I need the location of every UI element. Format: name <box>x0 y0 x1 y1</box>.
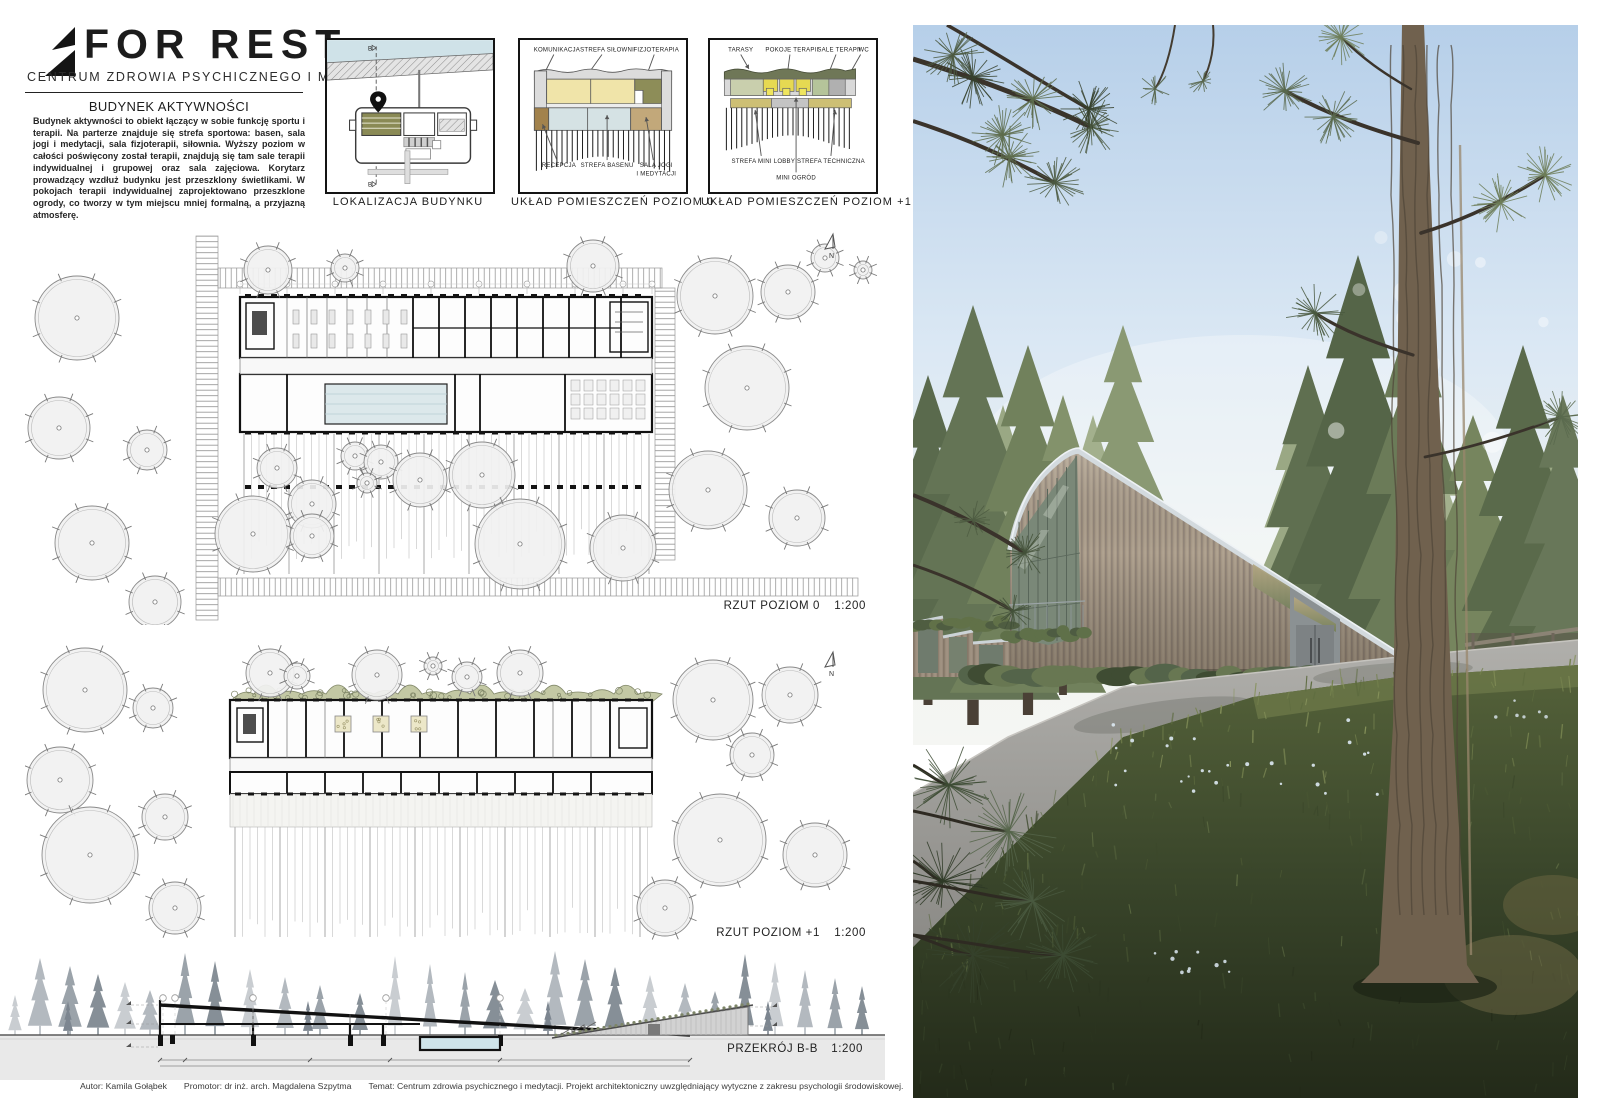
logo-title: FOR REST <box>84 24 347 65</box>
section-marker-top: B <box>368 46 372 52</box>
label-tarasy: TARASY <box>728 47 753 53</box>
intro-paragraph: Budynek aktywności to obiekt łączący w s… <box>33 116 305 221</box>
floor-plan-level0: N RZUT POZIOM 0 1:200 <box>25 228 885 625</box>
label-mini-ogrod: MINI OGRÓD <box>776 175 816 182</box>
building-render-photo <box>913 25 1578 1098</box>
svg-text:N: N <box>829 253 834 260</box>
plan0-label: RZUT POZIOM 0 <box>724 600 820 612</box>
caption-level1: UKŁAD POMIESZCZEŃ POZIOM +1 <box>701 196 881 208</box>
section-marker-bottom: B <box>368 183 372 189</box>
building-outline-level0 <box>240 294 652 489</box>
footer-topic: Temat: Centrum zdrowia psychicznego i me… <box>368 1081 903 1091</box>
caption-location: LOKALIZACJA BUDYNKU <box>318 196 498 208</box>
label-strefa-mini-lobby: STREFA MINI LOBBY <box>731 159 795 165</box>
plan1-scale: 1:200 <box>834 927 866 939</box>
section-label: PRZEKRÓJ B-B <box>727 1042 818 1055</box>
label-i-medytacji: I MEDYTACJI <box>636 171 676 177</box>
section-drawing: PRZEKRÓJ B-B 1:200 <box>0 948 885 1080</box>
label-sale-terapii: SALE TERAPII <box>817 47 861 53</box>
pillars-hatch <box>726 108 849 150</box>
plan0-scale: 1:200 <box>834 600 866 612</box>
diagram-level1: TARASY POKOJE TERAPII SALE TERAPII WC ST… <box>708 38 878 194</box>
label-recepcja: RECEPCJA <box>542 163 577 169</box>
label-strefa-techniczna: STREFA TECHNICZNA <box>797 159 866 165</box>
footer-credits: Autor: Kamila Gołąbek Promotor: dr inż. … <box>80 1081 890 1091</box>
floor-plan-level1: N RZUT POZIOM +1 1:200 <box>25 640 885 945</box>
north-arrow-icon: N <box>825 652 835 678</box>
intro-heading: BUDYNEK AKTYWNOŚCI <box>33 99 305 114</box>
label-strefa-basenu: STREFA BASENU <box>581 163 634 169</box>
presentation-board: FOR REST CENTRUM ZDROWIA PSYCHICZNEGO I … <box>0 0 1600 1120</box>
section-scale: 1:200 <box>831 1043 863 1055</box>
plan1-label: RZUT POZIOM +1 <box>716 927 820 939</box>
svg-text:N: N <box>829 671 834 678</box>
logo-divider <box>25 92 303 93</box>
label-sala-jogi: SALA JOGI <box>640 163 673 169</box>
caption-level0: UKŁAD POMIESZCZEŃ POZIOM 0 <box>511 196 691 208</box>
footer-promoter: Promotor: dr inż. arch. Magdalena Szpytm… <box>184 1081 352 1091</box>
footer-author: Autor: Kamila Gołąbek <box>80 1081 167 1091</box>
forrest-logo-icon <box>41 26 81 76</box>
label-strefa-silowni: STREFA SIŁOWNI <box>580 47 634 53</box>
label-komunikacja: KOMUNIKACJA <box>534 47 581 53</box>
label-fizjoterapia: FIZJOTERAPIA <box>633 47 679 53</box>
label-pokoje-terapii: POKOJE TERAPII <box>765 47 818 53</box>
diagram-location: B B <box>325 38 495 194</box>
label-wc: WC <box>858 47 869 53</box>
building-outline-level1 <box>230 699 652 828</box>
diagram-level0: KOMUNIKACJA STREFA SIŁOWNI FIZJOTERAPIA … <box>518 38 688 194</box>
